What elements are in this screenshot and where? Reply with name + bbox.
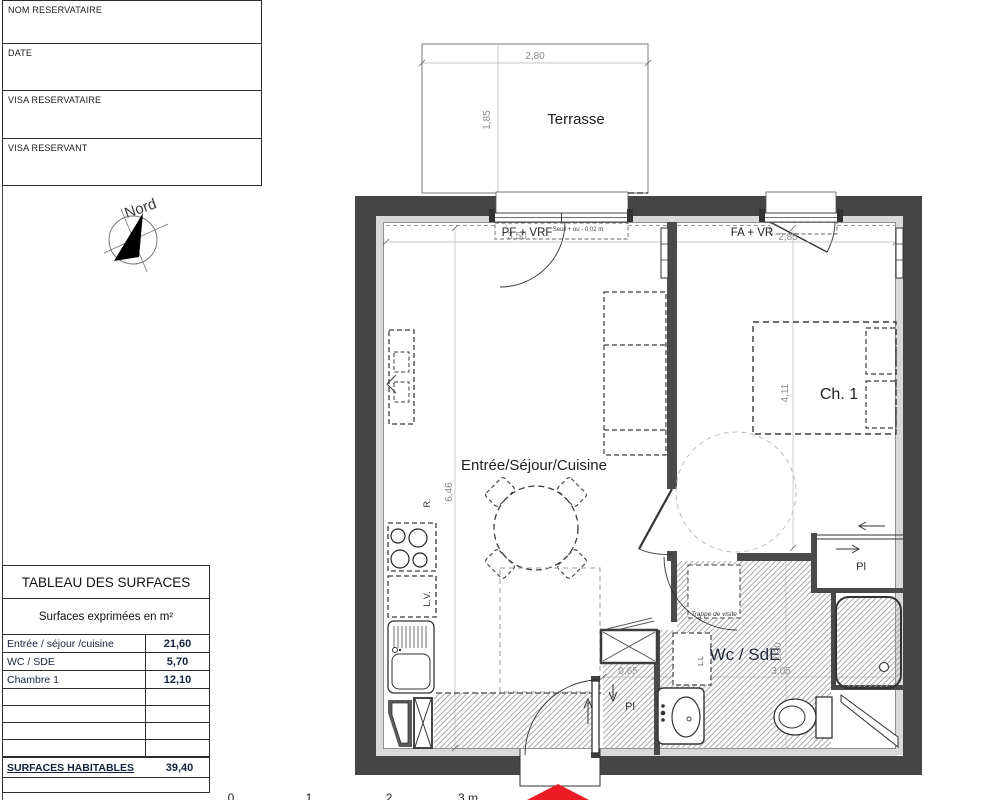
- partition-post: [667, 551, 677, 561]
- closet-bottom-wall: [811, 588, 905, 593]
- radiator: [896, 228, 903, 278]
- surfaces-total-label: SURFACES HABITABLES: [3, 762, 150, 774]
- access-hatch-label: Trappe de visite: [691, 611, 737, 618]
- closet-left-wall: [811, 533, 817, 593]
- insulation-bottom: [376, 749, 897, 756]
- surfaces-row-value: 21,60: [146, 635, 209, 652]
- surfaces-row-label: Entrée / séjour /cuisine: [3, 635, 146, 652]
- window-recess: [766, 192, 836, 216]
- tap-dot: [661, 718, 665, 722]
- toilet-tank: [816, 697, 832, 738]
- signature-row-nom: NOM RESERVATAIRE: [3, 1, 261, 44]
- chair: [556, 548, 587, 579]
- surfaces-row-empty: [3, 706, 209, 723]
- chair: [484, 476, 515, 507]
- surfaces-total-value: 39,40: [150, 762, 209, 774]
- pillow-dashed: [866, 381, 896, 428]
- burner: [391, 529, 405, 543]
- washing-machine: [673, 633, 711, 685]
- scale-tick-1: 1: [306, 791, 313, 800]
- entry-corridor-hatch: [434, 693, 593, 749]
- window-jamb: [759, 209, 765, 222]
- signature-row-visa-reservant: VISA RESERVANT: [3, 139, 261, 185]
- burner: [413, 553, 427, 567]
- surfaces-row-living: Entrée / séjour /cuisine 21,60: [3, 635, 209, 653]
- toilet-bowl: [774, 699, 816, 735]
- surfaces-empty-row: [3, 778, 209, 792]
- bedroom-window-label: FA + VR: [731, 227, 774, 239]
- kitchen-sink-unit: [388, 621, 434, 693]
- threshold-label: Seuil + ou - 0,02 m: [553, 227, 604, 233]
- bedroom-closet: Pl: [817, 522, 903, 573]
- surfaces-total-row: SURFACES HABITABLES 39,40: [3, 757, 209, 778]
- bedroom-door: [639, 489, 672, 554]
- entrance-recess: [520, 749, 600, 786]
- window-jamb: [627, 209, 633, 222]
- bedroom: Ch. 1: [676, 322, 896, 552]
- duct-shaft-inner: [392, 703, 408, 743]
- washing-machine-label: L.L: [698, 656, 705, 666]
- wall-left: [355, 196, 376, 775]
- pillow-dashed: [866, 328, 896, 374]
- living-room-label: Entrée/Séjour/Cuisine: [461, 457, 607, 474]
- bathroom-door-leaf: [841, 695, 898, 747]
- sofa-dashed: [604, 292, 666, 455]
- tall-unit-inner: [394, 382, 409, 402]
- surfaces-row-label: WC / SDE: [3, 653, 146, 670]
- sink-basin: [392, 654, 430, 689]
- dining-set: [484, 476, 587, 579]
- rug-dashed: [500, 568, 600, 692]
- bedroom-closet-label: Pl: [856, 561, 866, 573]
- surfaces-row-label: Chambre 1: [3, 671, 146, 688]
- surfaces-row-empty: [3, 740, 209, 757]
- entry-shafts: [388, 698, 432, 748]
- burner: [409, 529, 427, 547]
- living-length-dim: 6,46: [444, 482, 455, 502]
- bathroom-label: Wc / SdE: [710, 645, 781, 664]
- insulation-left: [376, 216, 383, 755]
- wall-right: [903, 196, 922, 775]
- surfaces-row-empty: [3, 689, 209, 706]
- surfaces-row-value: 5,70: [146, 653, 209, 670]
- door-leaf: [639, 489, 672, 549]
- floor-plan-page: { "signature_table": { "rows": ["NOM RES…: [0, 0, 1007, 800]
- signature-row-date: DATE: [3, 44, 261, 91]
- window-recess: [496, 192, 628, 216]
- radiator: [661, 228, 668, 278]
- bedroom-length-dim: 4,11: [780, 383, 791, 402]
- shower-tray: [836, 597, 901, 688]
- door-leaf: [592, 681, 599, 753]
- terrace: 2,80 1,85 Terrasse: [419, 44, 651, 193]
- bedroom-label: Ch. 1: [820, 386, 858, 403]
- dishwasher-label: L.V.: [422, 591, 432, 606]
- entry-closet-label: Pl: [625, 701, 635, 713]
- surfaces-row-value: 12,10: [146, 671, 209, 688]
- tap-dot: [661, 704, 665, 708]
- scale-tick-0: 0: [228, 791, 235, 800]
- kitchen: [387, 330, 436, 617]
- burner: [391, 550, 409, 568]
- wall-bottom: [355, 756, 922, 775]
- window-jamb: [837, 209, 843, 222]
- surfaces-row-empty: [3, 723, 209, 740]
- signature-row-visa-reservataire: VISA RESERVATAIRE: [3, 91, 261, 139]
- window-jamb: [489, 209, 495, 222]
- bathroom-left-wall-upper: [671, 561, 677, 622]
- tall-unit-inner: [394, 352, 409, 372]
- bathroom-top-wall: [737, 553, 815, 561]
- sliding-door-track: [817, 535, 903, 539]
- terrace-label: Terrasse: [547, 111, 605, 128]
- bedroom-width-dim: 2,85: [778, 232, 798, 243]
- signature-table: NOM RESERVATAIRE DATE VISA RESERVATAIRE …: [2, 0, 262, 186]
- surfaces-table-title: TABLEAU DES SURFACES: [3, 566, 209, 599]
- window-door-swing-arc: [827, 222, 835, 252]
- tap-dot: [661, 711, 666, 716]
- chair: [556, 476, 587, 507]
- terrace-outline: [422, 44, 648, 193]
- living-window-label: PF + VRF: [502, 227, 553, 239]
- scale-tick-3: 3 m: [458, 791, 478, 800]
- fridge-label: R.: [422, 499, 432, 508]
- scale-bar: 0 1 2 3 m: [228, 791, 478, 800]
- turning-circle-dashed: [676, 432, 796, 552]
- lintel-dashes: [386, 222, 896, 239]
- surfaces-row-wc: WC / SDE 5,70: [3, 653, 209, 671]
- surfaces-table: TABLEAU DES SURFACES Surfaces exprimées …: [2, 565, 210, 793]
- terrace-width-dim: 2,80: [525, 51, 545, 62]
- surfaces-table-subtitle: Surfaces exprimées en m²: [3, 599, 209, 635]
- tall-unit-dashed: [389, 330, 414, 424]
- faucet-dot: [399, 649, 401, 651]
- north-compass: Nord: [104, 195, 168, 272]
- terrace-depth-dim: 1,85: [482, 110, 493, 130]
- bed-dashed: [753, 322, 896, 434]
- washbasin-bowl: [672, 697, 700, 737]
- shower-drain: [880, 663, 889, 672]
- scale-tick-2: 2: [386, 791, 393, 800]
- surfaces-row-chambre: Chambre 1 12,10: [3, 671, 209, 689]
